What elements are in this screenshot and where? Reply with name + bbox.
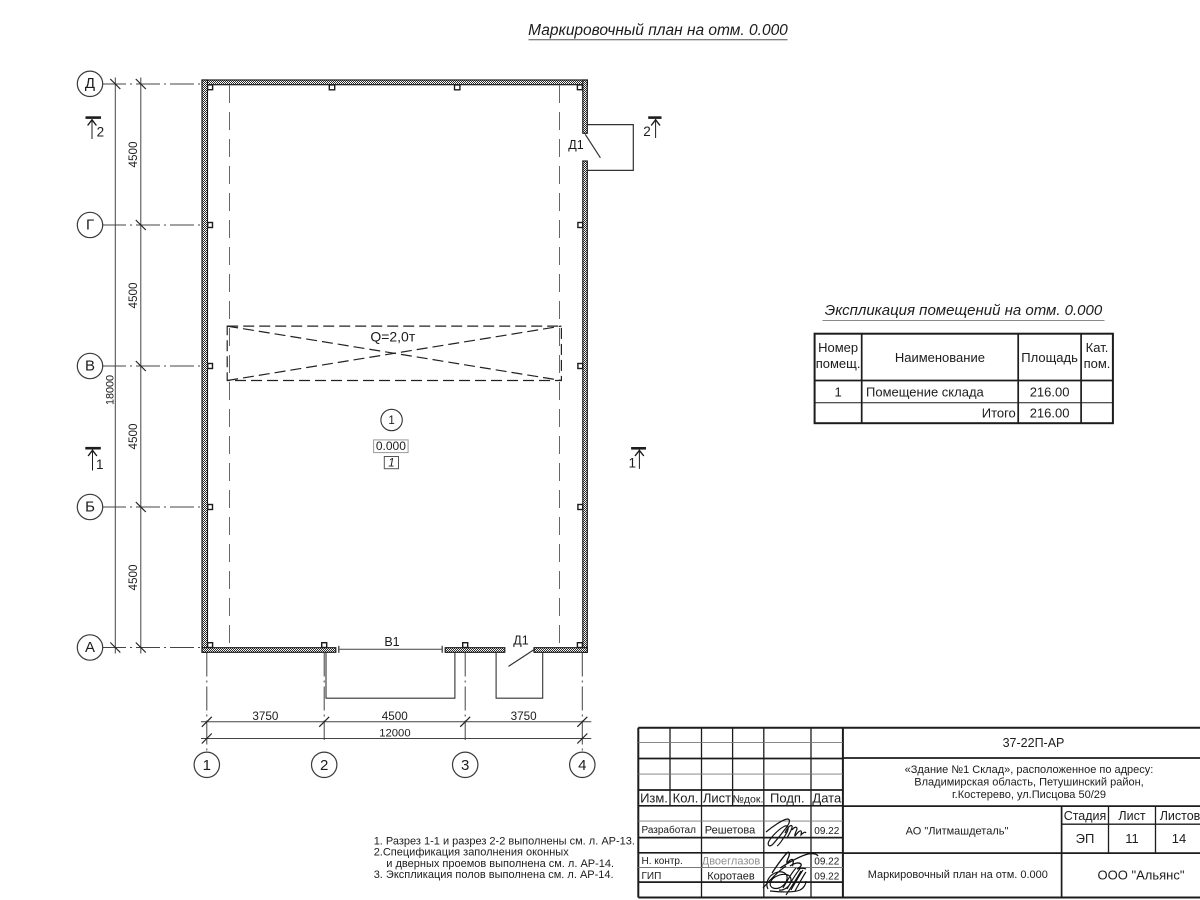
svg-text:12000: 12000: [379, 728, 410, 740]
svg-text:Стадия: Стадия: [1064, 809, 1107, 823]
svg-text:Двоеглазов: Двоеглазов: [702, 856, 761, 868]
svg-text:Помещение склада: Помещение склада: [866, 385, 985, 400]
svg-text:2.Спецификация заполнения окон: 2.Спецификация заполнения оконных: [374, 847, 570, 859]
svg-text:3: 3: [461, 757, 469, 774]
svg-text:и дверных проемов выполнена см: и дверных проемов выполнена см. л. АР-14…: [386, 858, 614, 870]
svg-text:0.000: 0.000: [376, 439, 406, 453]
svg-text:Владимирская область, Петушинс: Владимирская область, Петушинский район,: [914, 777, 1143, 789]
svg-text:Площадь: Площадь: [1021, 350, 1078, 365]
svg-text:Экспликация помещений на отм.: Экспликация помещений на отм. 0.000: [825, 302, 1103, 319]
svg-text:Д: Д: [85, 75, 95, 92]
svg-text:Коротаев: Коротаев: [707, 871, 755, 883]
svg-text:18000: 18000: [105, 375, 117, 405]
svg-text:1: 1: [388, 457, 394, 469]
svg-text:4500: 4500: [127, 282, 140, 309]
svg-text:1: 1: [96, 457, 104, 472]
svg-text:1: 1: [834, 385, 841, 400]
svg-text:Лист: Лист: [1118, 809, 1145, 823]
svg-text:2: 2: [643, 124, 651, 139]
svg-text:2: 2: [97, 125, 105, 140]
svg-text:4500: 4500: [127, 141, 140, 168]
svg-text:В: В: [85, 357, 95, 374]
svg-text:216.00: 216.00: [1030, 385, 1070, 400]
svg-text:4: 4: [578, 757, 586, 774]
svg-text:Маркировочный план на отм. 0.0: Маркировочный план на отм. 0.000: [868, 869, 1048, 881]
svg-text:А: А: [85, 639, 95, 656]
svg-text:г.Костерево, ул.Писцова 50/29: г.Костерево, ул.Писцова 50/29: [952, 789, 1106, 801]
svg-text:ЭП: ЭП: [1076, 831, 1095, 846]
svg-text:Н. контр.: Н. контр.: [642, 856, 683, 867]
svg-text:Итого: Итого: [982, 406, 1016, 421]
svg-text:Д1: Д1: [513, 634, 528, 648]
svg-text:11: 11: [1125, 831, 1139, 846]
svg-text:09.22: 09.22: [814, 826, 839, 837]
svg-text:4500: 4500: [127, 423, 140, 450]
svg-text:4500: 4500: [127, 564, 140, 591]
svg-text:09.22: 09.22: [814, 872, 839, 883]
svg-text:Дата: Дата: [812, 791, 842, 806]
svg-text:Наименование: Наименование: [895, 350, 985, 365]
svg-text:3750: 3750: [511, 710, 538, 723]
svg-text:1: 1: [203, 757, 211, 774]
svg-text:3750: 3750: [252, 710, 279, 723]
svg-text:ГИП: ГИП: [642, 871, 662, 882]
svg-text:Кат.: Кат.: [1086, 340, 1109, 355]
svg-text:Q=2,0т: Q=2,0т: [370, 329, 416, 345]
svg-text:«Здание №1 Склад», расположенн: «Здание №1 Склад», расположенное по адре…: [905, 764, 1154, 776]
svg-text:Изм.: Изм.: [640, 791, 668, 806]
svg-text:Решетова: Решетова: [705, 825, 756, 837]
svg-text:АО "Литмашдеталь": АО "Литмашдеталь": [906, 825, 1009, 837]
svg-text:37-22П-АР: 37-22П-АР: [1003, 736, 1065, 750]
svg-text:1: 1: [388, 415, 394, 427]
svg-text:Листов: Листов: [1160, 809, 1200, 823]
svg-text:09.22: 09.22: [814, 857, 839, 868]
svg-text:1. Разрез 1-1 и разрез 2-2 вып: 1. Разрез 1-1 и разрез 2-2 выполнены см.…: [374, 835, 635, 847]
svg-text:№док.: №док.: [733, 794, 764, 806]
svg-text:Лист: Лист: [703, 791, 731, 806]
svg-text:Б: Б: [85, 498, 95, 515]
svg-text:Маркировочный план на отм. 0.0: Маркировочный план на отм. 0.000: [528, 22, 788, 39]
svg-text:Номер: Номер: [818, 340, 858, 355]
svg-text:1: 1: [628, 455, 636, 470]
svg-text:Подп.: Подп.: [770, 791, 805, 806]
svg-text:Д1: Д1: [568, 138, 583, 152]
svg-text:14: 14: [1172, 831, 1186, 846]
svg-text:4500: 4500: [382, 710, 409, 723]
svg-text:ООО "Альянс": ООО "Альянс": [1098, 867, 1185, 882]
svg-text:В1: В1: [384, 635, 399, 649]
svg-text:2: 2: [320, 757, 328, 774]
svg-text:Разработал: Разработал: [642, 824, 697, 836]
svg-text:помещ.: помещ.: [816, 356, 861, 371]
svg-text:3. Экспликация полов выполнена: 3. Экспликация полов выполнена см. л. АР…: [374, 869, 614, 881]
svg-text:пом.: пом.: [1084, 356, 1111, 371]
svg-text:216.00: 216.00: [1030, 406, 1070, 421]
svg-text:Кол.: Кол.: [673, 791, 699, 806]
svg-text:Г: Г: [86, 216, 94, 233]
